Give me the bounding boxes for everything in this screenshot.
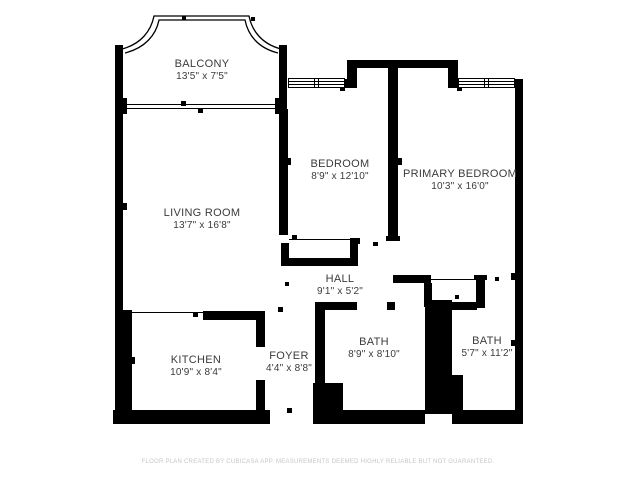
primary-bedroom-window <box>459 79 515 88</box>
bedroom-window <box>289 79 345 88</box>
disclaimer-text: FLOOR PLAN CREATED BY CUBICASA APP. MEAS… <box>142 459 495 465</box>
floor-plan-drawing <box>0 0 640 480</box>
floor-plan-page: BALCONY 13'5" x 7'5" LIVING ROOM 13'7" x… <box>0 0 640 480</box>
balcony-arch <box>122 16 281 53</box>
walls <box>113 45 523 424</box>
